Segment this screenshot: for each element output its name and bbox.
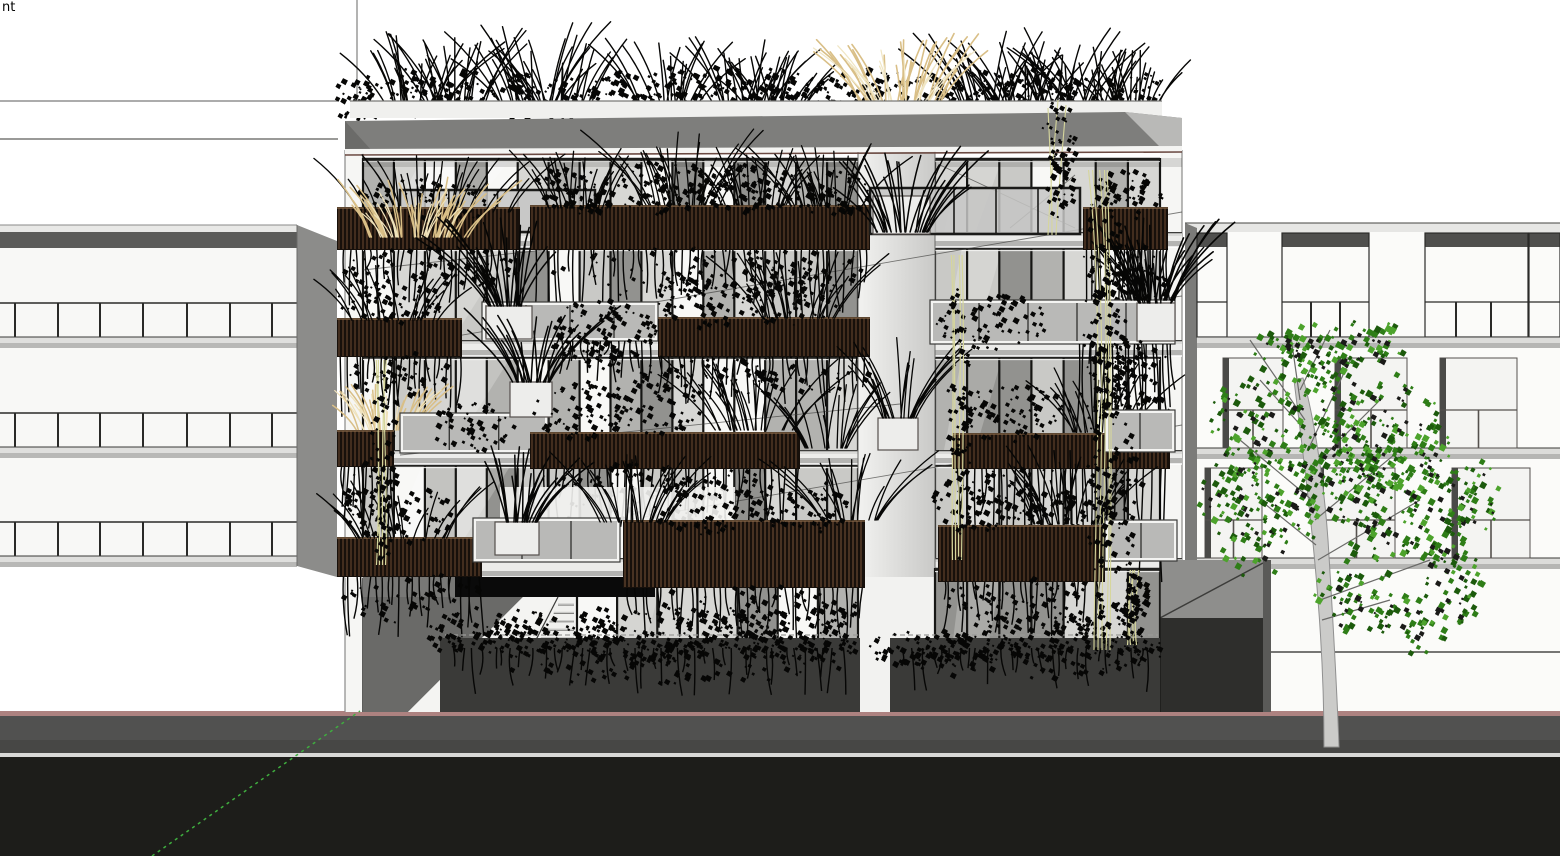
model-viewport[interactable]: nt [0,0,1560,856]
service-volume [1160,560,1271,712]
left-building [0,225,337,577]
view-name-label: nt [2,0,15,16]
center-building [314,22,1271,712]
scene-canvas[interactable] [0,0,1560,856]
